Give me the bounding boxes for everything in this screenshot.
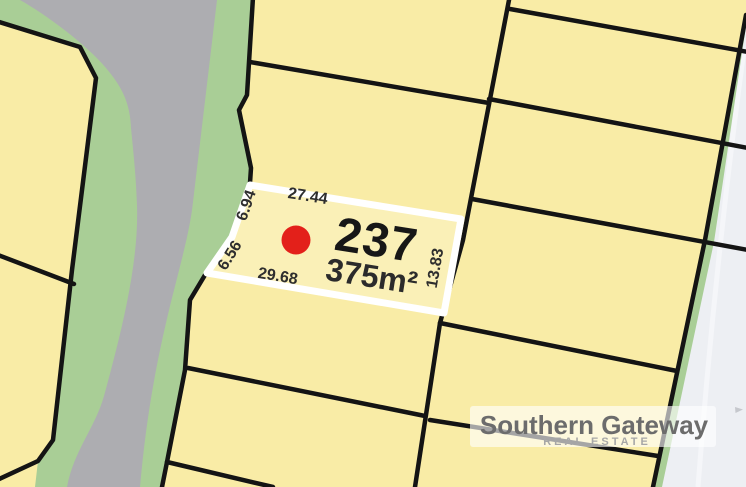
- lot-map: 27.44 6.94 6.56 29.68 13.83 237 375m² So…: [0, 0, 746, 487]
- brand-tagline: REAL ESTATE: [543, 436, 651, 448]
- brand-logo: Southern Gateway REAL ESTATE: [470, 406, 716, 448]
- lot-237-marker-dot[interactable]: [282, 226, 311, 255]
